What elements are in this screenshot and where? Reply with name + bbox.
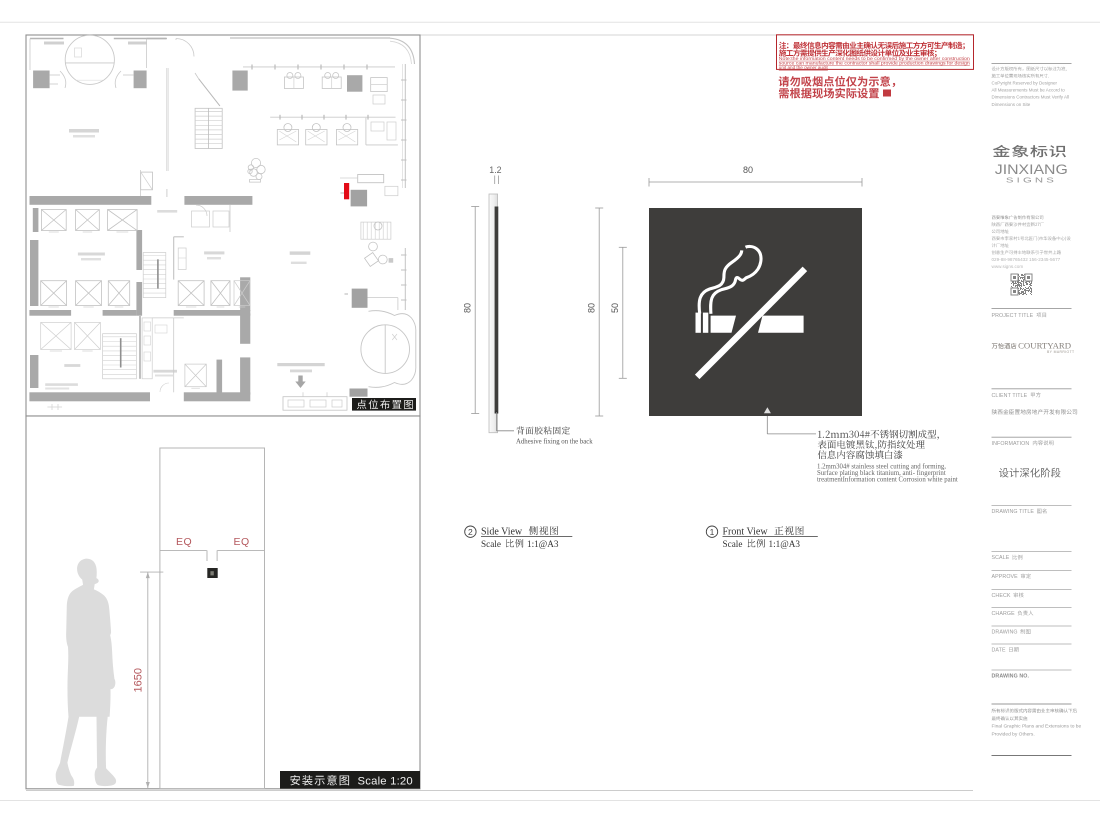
svg-text:unit and the owner audit: unit and the owner audit: [779, 65, 829, 70]
svg-text:1:1@A3: 1:1@A3: [769, 539, 801, 549]
svg-text:2: 2: [468, 527, 473, 537]
svg-text:PROJECT TITLE: PROJECT TITLE: [992, 313, 1034, 319]
svg-text:S I G N S: S I G N S: [1006, 178, 1055, 185]
svg-text:Scale 1:20: Scale 1:20: [358, 776, 413, 788]
svg-text:APPROVE: APPROVE: [992, 574, 1019, 580]
svg-text:JINXIANG: JINXIANG: [995, 162, 1068, 178]
svg-text:50: 50: [610, 303, 620, 313]
svg-text:Dimensions Contractors Must Ve: Dimensions Contractors Must Verify All: [992, 95, 1070, 100]
svg-text:Scale: Scale: [481, 539, 501, 549]
svg-text:80: 80: [462, 303, 472, 313]
svg-text:DRAWING: DRAWING: [992, 630, 1018, 636]
svg-text:CHARGE: CHARGE: [992, 611, 1016, 617]
svg-text:Adhesive fixing on the back: Adhesive fixing on the back: [516, 439, 593, 446]
svg-text:DRAWING TITLE: DRAWING TITLE: [992, 509, 1035, 515]
svg-text:1650: 1650: [133, 668, 145, 692]
svg-text:INFORMATION: INFORMATION: [992, 441, 1030, 447]
svg-text:EQ: EQ: [234, 536, 250, 548]
svg-text:Side View: Side View: [481, 526, 523, 537]
svg-text:DRAWING NO.: DRAWING NO.: [992, 674, 1030, 680]
svg-text:Provided by Others.: Provided by Others.: [992, 732, 1035, 738]
svg-text:1.2: 1.2: [489, 165, 501, 175]
svg-text:029-88-98765432 156-2345-5677: 029-88-98765432 156-2345-5677: [992, 257, 1061, 262]
svg-text:SCALE: SCALE: [992, 555, 1010, 561]
svg-text:80: 80: [586, 303, 596, 313]
svg-text:80: 80: [743, 165, 753, 175]
svg-text:DATE: DATE: [992, 648, 1007, 654]
svg-text:CoPyright Reserved by Designer: CoPyright Reserved by Designer: [992, 81, 1058, 86]
svg-text:Scale: Scale: [723, 539, 743, 549]
svg-text:BY MARRIOTT: BY MARRIOTT: [1047, 350, 1075, 354]
svg-text:1: 1: [710, 527, 715, 537]
svg-text:1:1@A3: 1:1@A3: [527, 539, 559, 549]
svg-text:All Measurements Must be Accor: All Measurements Must be Accord to: [992, 88, 1066, 93]
svg-text:CLIENT TITLE: CLIENT TITLE: [992, 393, 1028, 399]
svg-text:CHECK: CHECK: [992, 593, 1011, 599]
svg-text:Dimensions on Site: Dimensions on Site: [992, 102, 1031, 107]
svg-text:EQ: EQ: [176, 536, 192, 548]
svg-text:Front View: Front View: [723, 526, 769, 537]
svg-text:treatmentInformation content C: treatmentInformation content Corrosion w…: [817, 477, 958, 484]
svg-text:www.signs.com: www.signs.com: [992, 264, 1024, 269]
svg-text:Final Graphic Plans and Extens: Final Graphic Plans and Extensions to be: [992, 724, 1082, 730]
svg-text:COURTYARD: COURTYARD: [1018, 340, 1071, 350]
